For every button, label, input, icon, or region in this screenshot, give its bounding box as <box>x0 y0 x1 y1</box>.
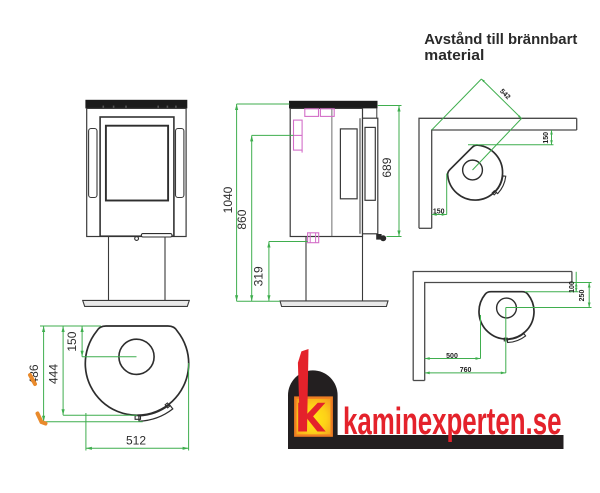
svg-text:860: 860 <box>235 209 249 229</box>
svg-text:500: 500 <box>446 353 458 360</box>
svg-text:kaminexperten.se: kaminexperten.se <box>343 401 562 443</box>
svg-text:150: 150 <box>65 331 79 351</box>
svg-text:1040: 1040 <box>221 186 235 213</box>
svg-text:689: 689 <box>380 157 394 177</box>
svg-text:150: 150 <box>543 132 550 144</box>
svg-text:319: 319 <box>252 266 266 286</box>
svg-text:100: 100 <box>569 281 576 293</box>
svg-text:Avstånd till brännbart: Avstånd till brännbart <box>424 32 577 48</box>
svg-text:760: 760 <box>460 367 472 374</box>
svg-text:material: material <box>424 48 484 64</box>
svg-text:512: 512 <box>126 434 146 448</box>
svg-text:250: 250 <box>579 290 586 302</box>
svg-text:444: 444 <box>47 364 61 384</box>
svg-text:150: 150 <box>433 208 445 215</box>
